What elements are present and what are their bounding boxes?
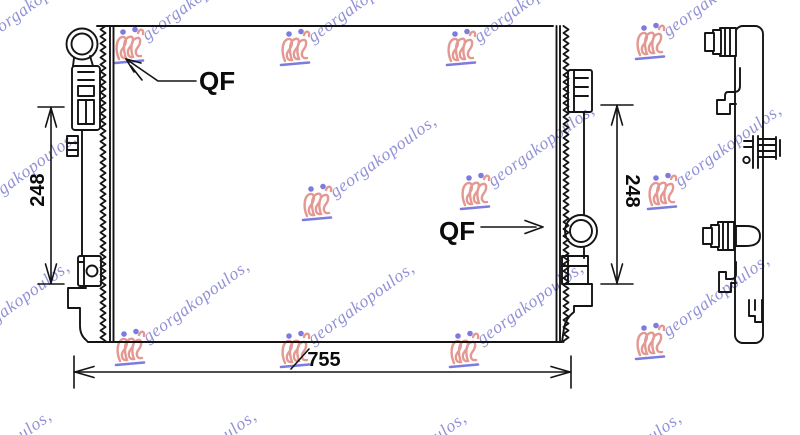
right-mount-foot <box>562 284 592 342</box>
watermark <box>0 256 73 366</box>
qf-label: QF <box>439 216 475 246</box>
watermark <box>303 110 440 220</box>
dimension-value: 755 <box>307 349 340 371</box>
dimension-width-bottom: 755 <box>74 349 571 388</box>
watermark <box>281 0 418 65</box>
watermark <box>548 407 685 435</box>
watermark <box>0 405 55 435</box>
watermark <box>461 99 598 209</box>
watermark <box>281 257 418 367</box>
watermark <box>0 0 92 65</box>
side-middle-connector <box>743 136 780 168</box>
watermark <box>763 405 800 435</box>
qf-callout-right: QF <box>439 216 543 246</box>
dimension-value: 248 <box>27 173 49 206</box>
filler-neck-inner-circle <box>72 34 93 55</box>
side-upper-hook <box>717 68 740 114</box>
watermark <box>115 0 252 63</box>
qf-label: QF <box>199 66 235 96</box>
dimension-height-right: 248 <box>601 105 643 284</box>
watermark <box>648 99 785 209</box>
watermark <box>123 405 260 435</box>
watermark-layer <box>0 0 800 435</box>
left-tank <box>67 29 102 343</box>
watermark <box>116 255 253 365</box>
qf-callout-top-left: QF <box>126 59 235 96</box>
outlet-port-inner-circle <box>570 220 592 242</box>
side-lower-port <box>703 222 760 250</box>
left-mount-foot <box>68 288 88 342</box>
dimension-value: 248 <box>621 174 643 207</box>
right-zigzag-strip <box>557 26 569 342</box>
side-slot-detail <box>749 300 762 322</box>
left-zigzag-strip <box>101 26 114 342</box>
diagram-canvas: georgakopoulos, <box>0 0 800 435</box>
side-top-port <box>705 28 736 56</box>
watermark <box>333 407 470 435</box>
radiator-technical-drawing: georgakopoulos, <box>0 0 800 435</box>
